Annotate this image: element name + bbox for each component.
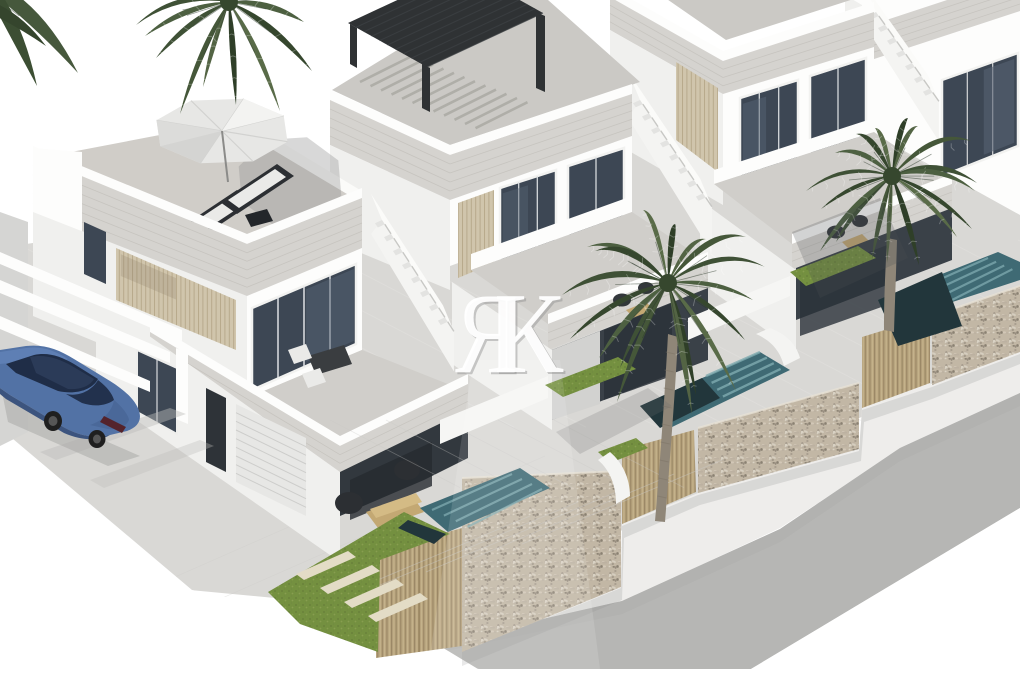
svg-text:К: К — [494, 270, 564, 397]
